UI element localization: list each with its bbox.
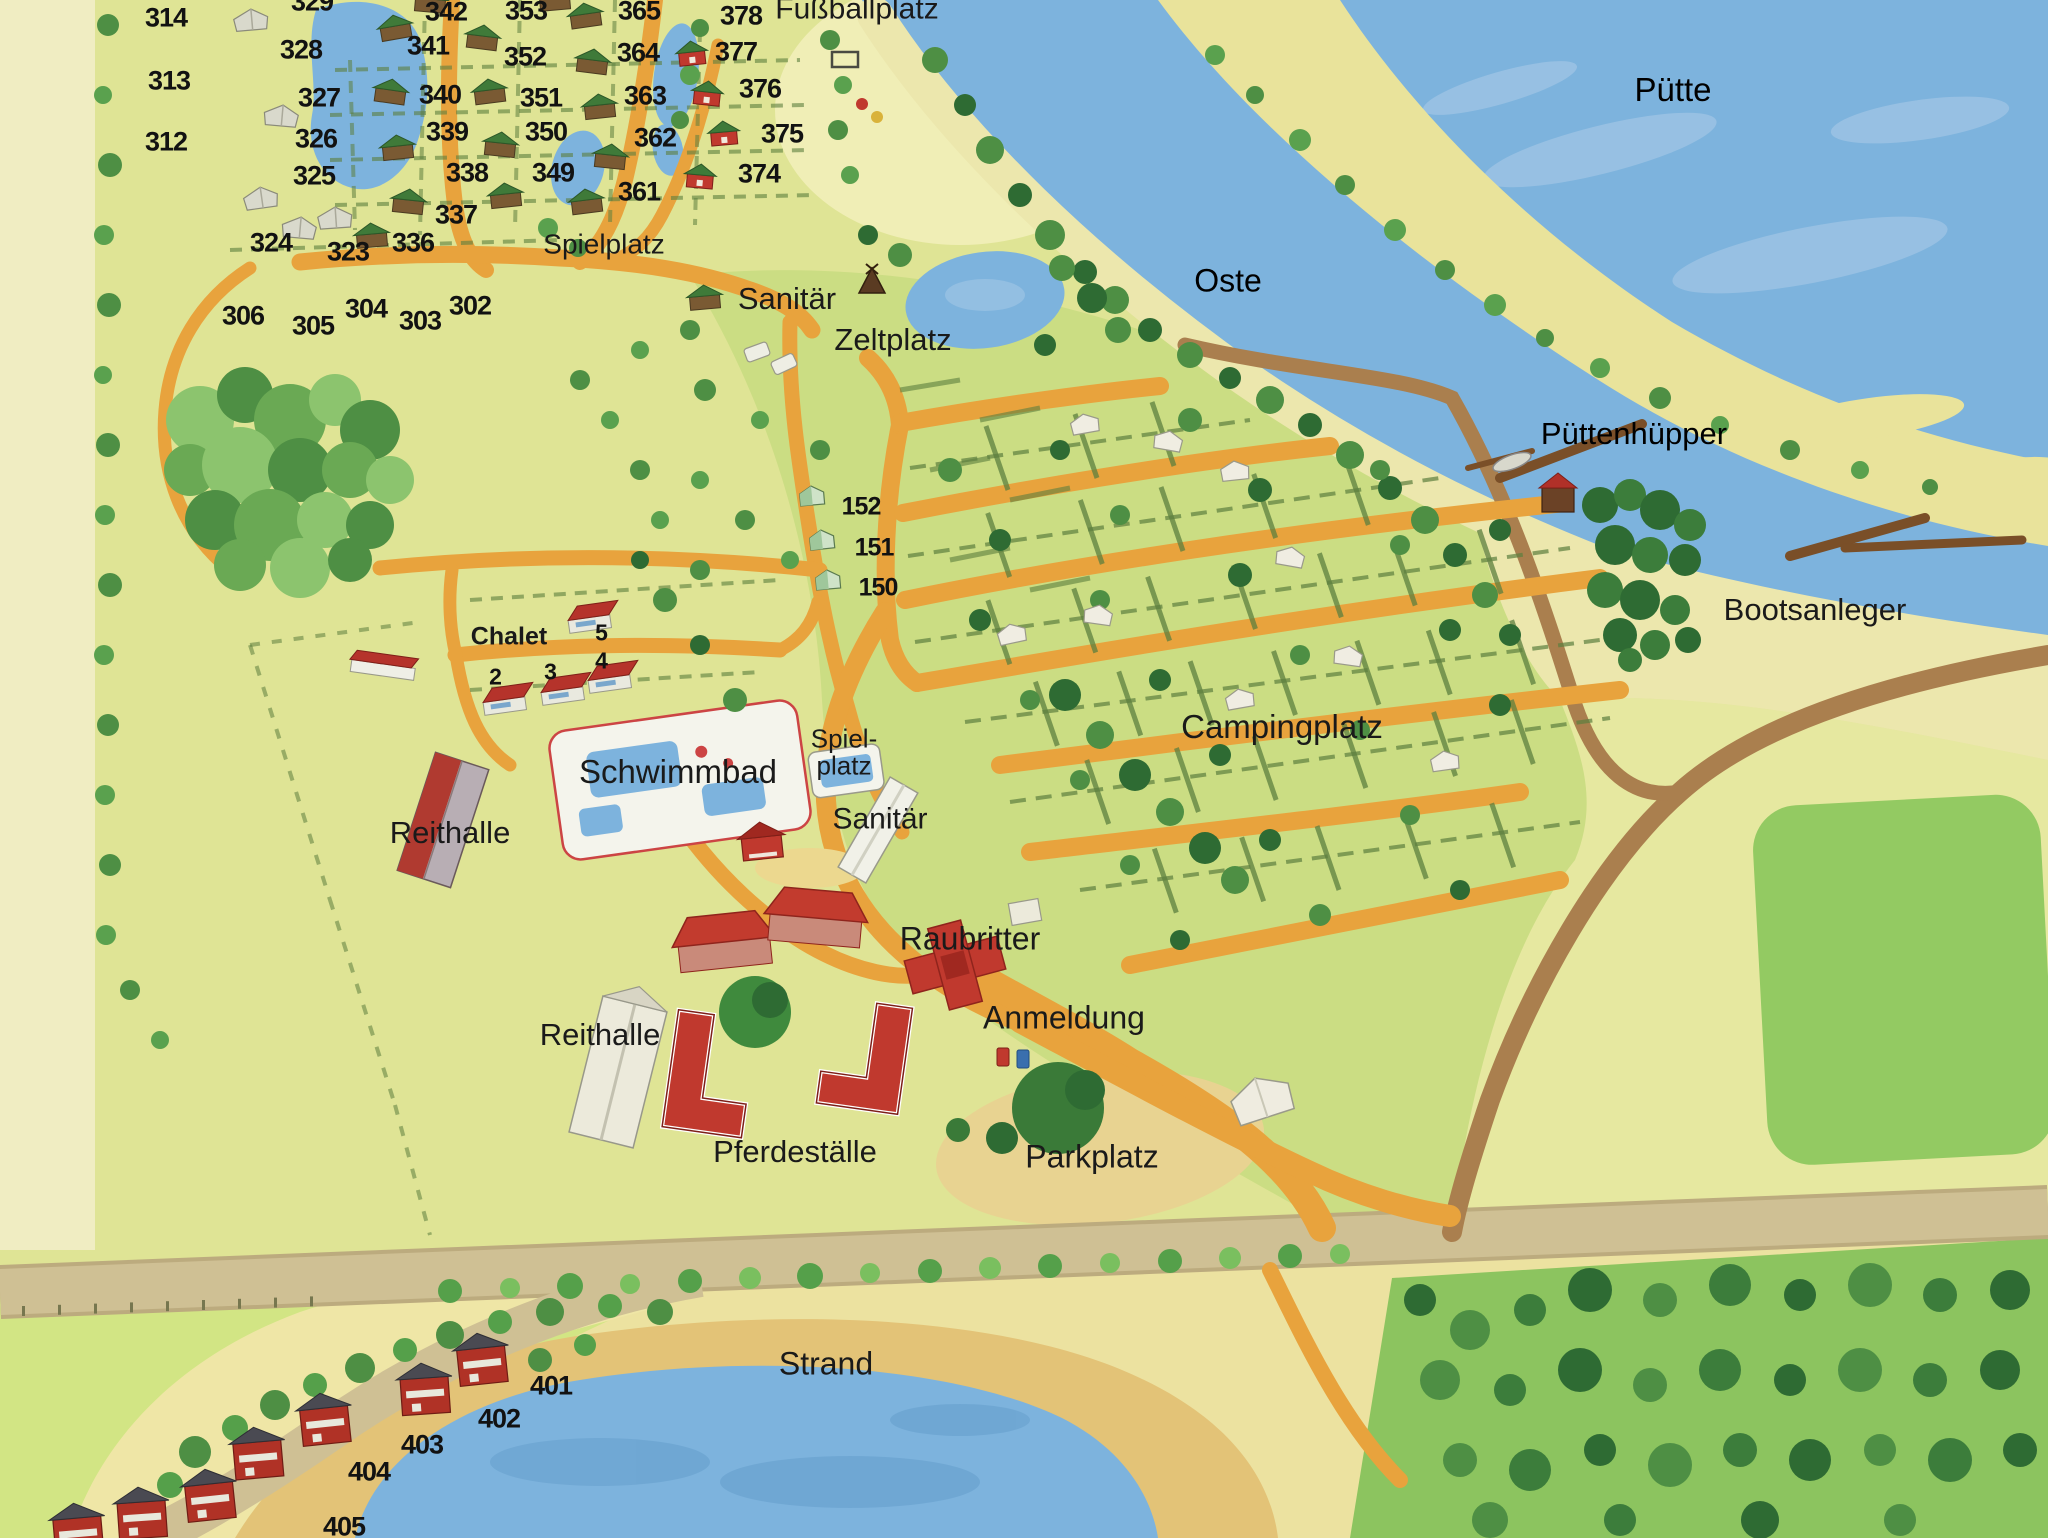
schwimmbad-outdoor-pool [807, 743, 885, 799]
zeltplatz-pond-light [945, 279, 1025, 311]
east-green-field [1751, 793, 2048, 1168]
carblue-building [1017, 1050, 1029, 1068]
map-terrain [0, 0, 2048, 1538]
shedw-building [1008, 899, 1041, 926]
player-dot-yellow [871, 111, 883, 123]
carred-building [997, 1048, 1009, 1066]
farmhouse-building [762, 886, 870, 949]
player-dot-red [856, 98, 868, 110]
farm-tree [719, 976, 791, 1048]
west-pale-field [0, 0, 95, 1250]
campground-map: FußballplatzSpielplatzSanitärZeltplatzPü… [0, 0, 2048, 1538]
